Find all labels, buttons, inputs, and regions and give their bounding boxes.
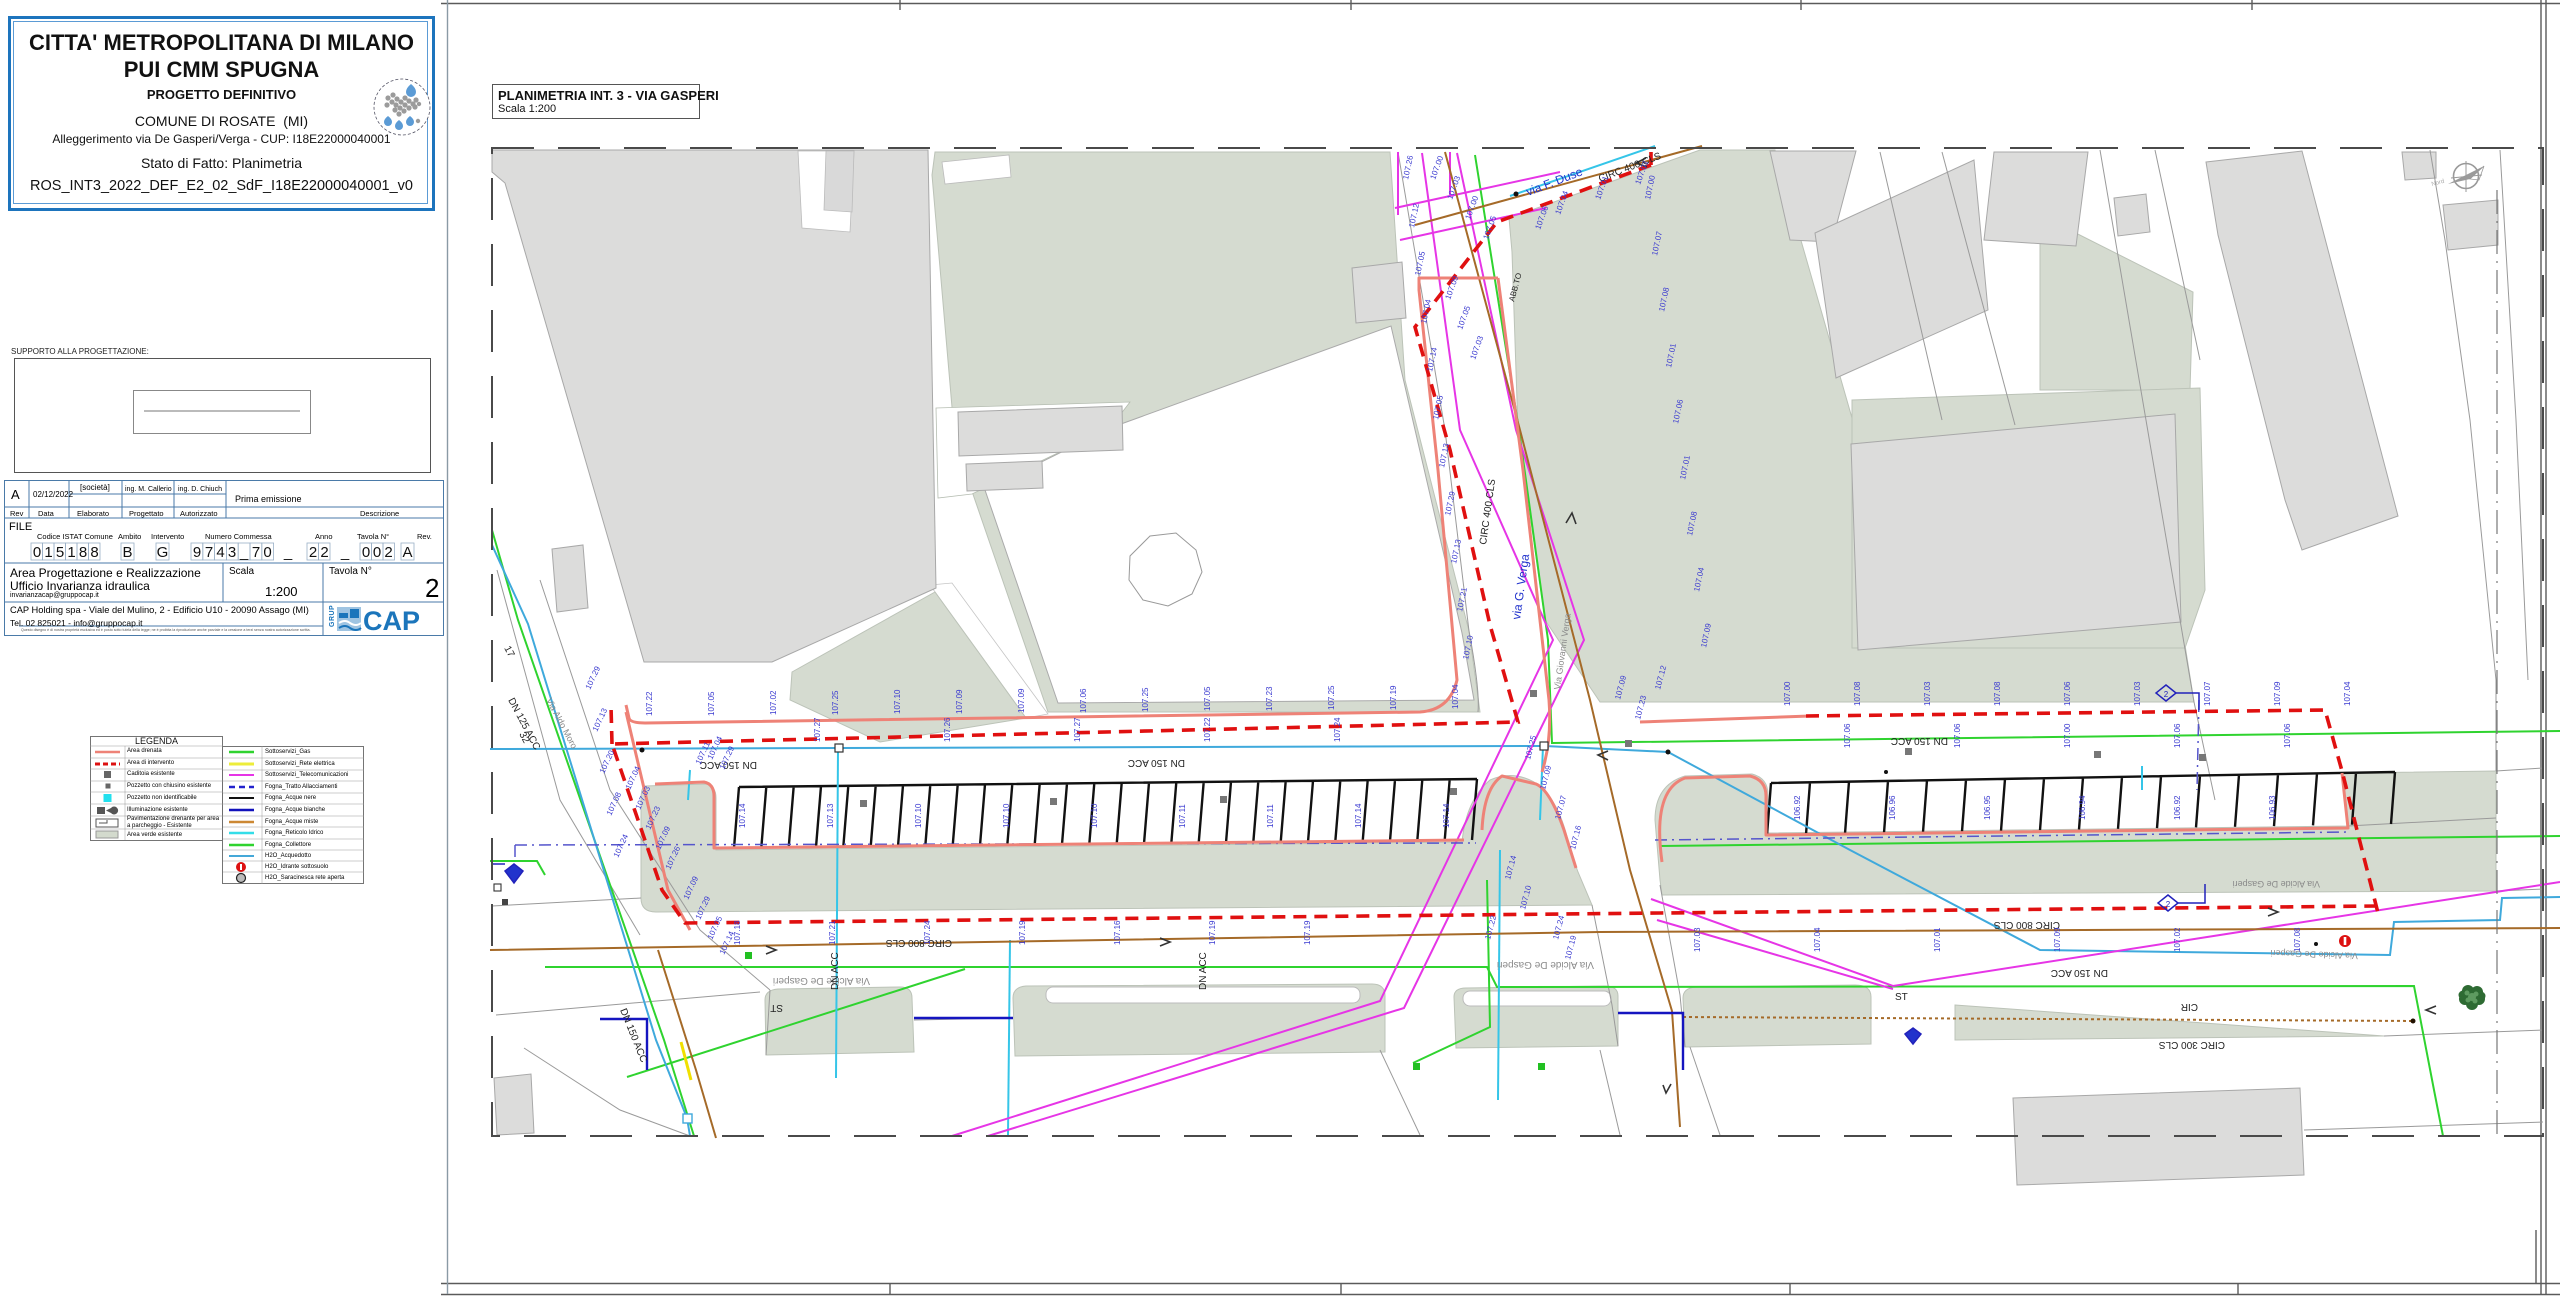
svg-text:107.23: 107.23 <box>1265 686 1274 711</box>
svg-text:107.25: 107.25 <box>831 690 840 715</box>
svg-text:106.92: 106.92 <box>1793 795 1802 820</box>
svg-text:107.09: 107.09 <box>1017 688 1026 713</box>
svg-text:ST: ST <box>770 1002 783 1013</box>
svg-text:CIRC 800 CLS: CIRC 800 CLS <box>1994 919 2060 930</box>
svg-text:107.06: 107.06 <box>2283 723 2292 748</box>
svg-text:DN 150 ACC: DN 150 ACC <box>617 1007 649 1064</box>
svg-text:107.06: 107.06 <box>1953 723 1962 748</box>
svg-text:107.03: 107.03 <box>2133 681 2142 706</box>
svg-text:107.14: 107.14 <box>1442 803 1451 828</box>
svg-text:107.24: 107.24 <box>923 920 932 945</box>
svg-text:107.06: 107.06 <box>1079 688 1088 713</box>
svg-text:DN 150 ACC: DN 150 ACC <box>1128 757 1185 768</box>
svg-text:106.92: 106.92 <box>2173 795 2182 820</box>
svg-text:107.08: 107.08 <box>2293 927 2302 952</box>
svg-text:107.03: 107.03 <box>1468 334 1485 361</box>
svg-text:107.05: 107.05 <box>1481 214 1498 241</box>
svg-text:107.02: 107.02 <box>2173 927 2182 952</box>
svg-text:107.00: 107.00 <box>1428 154 1445 181</box>
svg-text:DN ACC: DN ACC <box>1198 952 1209 990</box>
svg-text:2: 2 <box>2164 690 2169 699</box>
svg-text:107.05: 107.05 <box>1455 304 1472 331</box>
svg-text:107.10: 107.10 <box>1090 803 1099 828</box>
svg-text:107.21: 107.21 <box>828 920 837 945</box>
svg-text:107.05: 107.05 <box>706 914 725 940</box>
svg-text:107.11: 107.11 <box>1266 804 1275 828</box>
svg-text:107.05: 107.05 <box>707 691 716 716</box>
svg-text:107.26: 107.26 <box>943 717 952 742</box>
svg-text:107.05: 107.05 <box>1203 686 1212 711</box>
svg-text:107.08: 107.08 <box>1993 681 2002 706</box>
svg-text:106.93: 106.93 <box>2268 795 2277 820</box>
svg-text:107.09: 107.09 <box>1538 764 1553 790</box>
svg-text:107.29: 107.29 <box>584 664 603 690</box>
svg-text:107.22: 107.22 <box>1203 717 1212 742</box>
svg-text:Via Alcide De Gasperi: Via Alcide De Gasperi <box>2270 948 2358 961</box>
svg-text:107.19: 107.19 <box>1208 920 1217 945</box>
svg-text:107.09: 107.09 <box>2273 681 2282 706</box>
svg-text:107.03: 107.03 <box>1445 174 1462 201</box>
svg-text:DN ACC: DN ACC <box>830 952 841 990</box>
svg-text:107.07: 107.07 <box>2203 681 2212 706</box>
svg-text:107.08: 107.08 <box>1853 681 1862 706</box>
svg-text:107.08: 107.08 <box>605 790 624 816</box>
svg-text:107.03: 107.03 <box>1693 927 1702 952</box>
svg-text:107.06: 107.06 <box>1843 723 1852 748</box>
svg-text:CIRC 300 CLS: CIRC 300 CLS <box>2159 1039 2225 1050</box>
svg-text:107.18: 107.18 <box>733 920 742 945</box>
svg-text:107.07: 107.07 <box>1553 794 1568 820</box>
svg-text:107.24: 107.24 <box>612 832 631 858</box>
svg-text:107.14: 107.14 <box>1354 803 1363 828</box>
svg-text:ST: ST <box>1895 992 1908 1003</box>
svg-text:107.13: 107.13 <box>826 803 835 828</box>
svg-text:107.24: 107.24 <box>1333 717 1342 742</box>
svg-text:107.04: 107.04 <box>624 764 643 790</box>
svg-text:107.00: 107.00 <box>2063 723 2072 748</box>
svg-text:107.19: 107.19 <box>1018 920 1027 945</box>
svg-text:17: 17 <box>501 644 516 659</box>
svg-text:107.04: 107.04 <box>1451 684 1460 709</box>
svg-text:107.06: 107.06 <box>2173 723 2182 748</box>
svg-text:Nord: Nord <box>2431 179 2445 188</box>
svg-text:107.16: 107.16 <box>1113 920 1122 945</box>
svg-text:107.02: 107.02 <box>769 690 778 715</box>
svg-text:CIRC 800 CLS: CIRC 800 CLS <box>886 937 952 948</box>
svg-text:107.22: 107.22 <box>1483 914 1498 940</box>
svg-text:107.10: 107.10 <box>893 689 902 714</box>
svg-text:107.06: 107.06 <box>2063 681 2072 706</box>
svg-text:107.10: 107.10 <box>1002 803 1011 828</box>
svg-text:107.04: 107.04 <box>1813 927 1822 952</box>
svg-text:106.94: 106.94 <box>2078 795 2087 820</box>
svg-text:107.19: 107.19 <box>1303 920 1312 945</box>
svg-text:107.14: 107.14 <box>738 803 747 828</box>
svg-text:107.09: 107.09 <box>2053 927 2062 952</box>
svg-text:107.13: 107.13 <box>591 706 610 732</box>
svg-text:107.25: 107.25 <box>1141 687 1150 712</box>
svg-text:107.01: 107.01 <box>1933 927 1942 952</box>
svg-text:107.22: 107.22 <box>645 691 654 716</box>
svg-text:Via Alcide De Gasperi: Via Alcide De Gasperi <box>1497 959 1594 970</box>
svg-text:107.19: 107.19 <box>1389 685 1398 710</box>
svg-text:CIR: CIR <box>2181 1001 2198 1012</box>
svg-text:Via Aldo Moro: Via Aldo Moro <box>544 696 579 750</box>
svg-text:107.04: 107.04 <box>2343 681 2352 706</box>
svg-text:107.27: 107.27 <box>813 717 822 742</box>
svg-text:106.95: 106.95 <box>1983 795 1992 820</box>
svg-text:106.96: 106.96 <box>1888 795 1897 820</box>
svg-text:107.24: 107.24 <box>1551 914 1566 940</box>
svg-text:107.11: 107.11 <box>1178 804 1187 828</box>
svg-text:107.03: 107.03 <box>1923 681 1932 706</box>
svg-text:107.09: 107.09 <box>955 689 964 714</box>
svg-text:2: 2 <box>2166 900 2171 909</box>
svg-text:107.25: 107.25 <box>1327 685 1336 710</box>
svg-text:107.25: 107.25 <box>1523 734 1538 760</box>
svg-text:DN 150 ACC: DN 150 ACC <box>1891 735 1948 746</box>
svg-text:Via Alcide De Gasperi: Via Alcide De Gasperi <box>773 975 870 986</box>
svg-text:107.26: 107.26 <box>1401 154 1415 180</box>
svg-text:Via Alcide De Gasperi: Via Alcide De Gasperi <box>2233 879 2320 889</box>
svg-text:107.27: 107.27 <box>1073 717 1082 742</box>
svg-text:107.19: 107.19 <box>1563 934 1578 960</box>
svg-text:DN 150 ACC: DN 150 ACC <box>2051 967 2108 978</box>
svg-text:107.16: 107.16 <box>1568 824 1583 850</box>
svg-text:107.00: 107.00 <box>1783 681 1792 706</box>
svg-text:107.14: 107.14 <box>1425 346 1439 372</box>
svg-text:107.10: 107.10 <box>914 803 923 828</box>
